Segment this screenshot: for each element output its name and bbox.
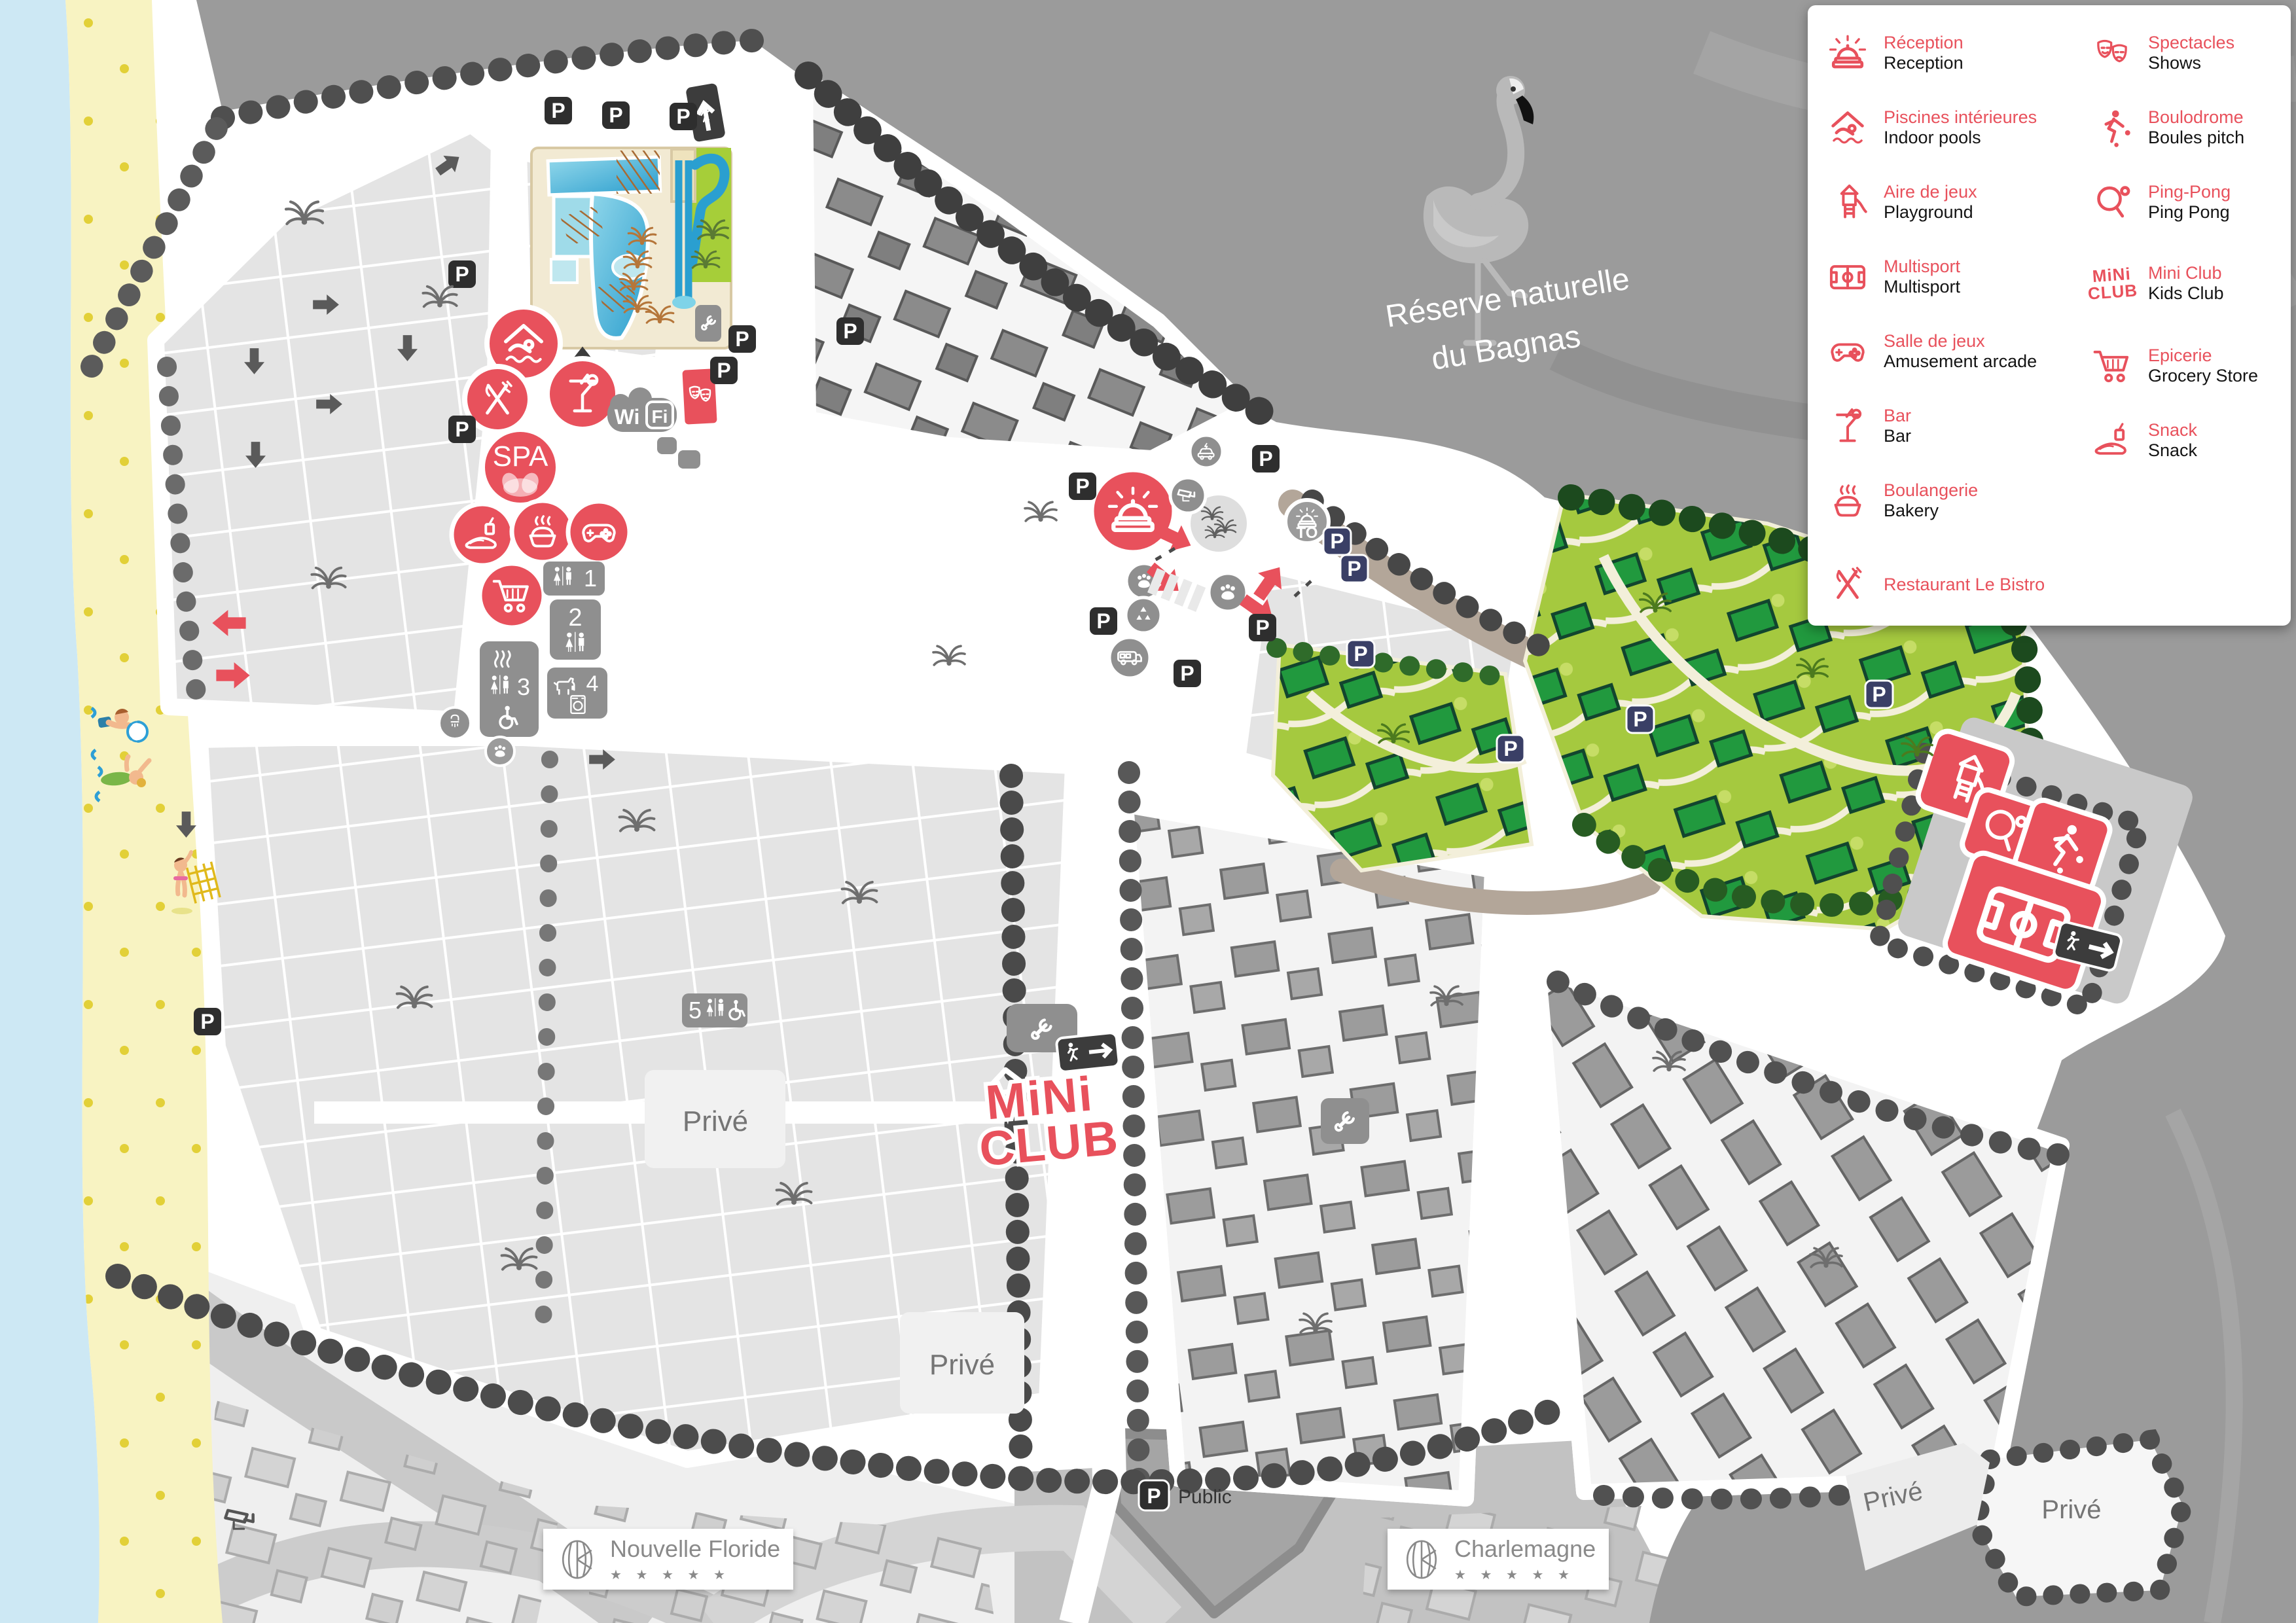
legend-item-playground: Aire de jeuxPlayground <box>1826 181 1977 224</box>
wifi-wi-label: Wi <box>615 405 640 429</box>
bakery-icon <box>512 501 573 562</box>
campsite-map: Réserve naturelle du Bagnas <box>0 0 2296 1623</box>
tour-operator-icon: TO <box>1285 500 1329 543</box>
legend-fr: Multisport <box>1884 257 1960 277</box>
shopping-cart-icon <box>2090 344 2134 387</box>
legend-en: Kids Club <box>2148 283 2224 304</box>
legend-item-boulodrome: BoulodromeBoules pitch <box>2090 106 2244 149</box>
block-1-number: 1 <box>584 565 597 592</box>
svg-text:P: P <box>1180 662 1194 685</box>
svg-text:P: P <box>1347 557 1361 580</box>
block-3-number: 3 <box>517 673 530 700</box>
resort-name: Nouvelle Floride <box>610 1535 780 1563</box>
svg-text:P: P <box>1255 616 1269 639</box>
playground-icon <box>1826 181 1869 224</box>
to-label: TO <box>1297 524 1318 542</box>
legend-fr: Epicerie <box>2148 346 2258 366</box>
parking-badge: P <box>1090 607 1117 635</box>
legend-fr: Salle de jeux <box>1884 331 2037 351</box>
legend-en: Multisport <box>1884 277 1960 297</box>
svg-text:P: P <box>455 262 469 286</box>
svg-text:P: P <box>735 327 749 351</box>
parking-badge: P <box>448 416 476 443</box>
loungers <box>617 151 660 194</box>
sanitary-block-1: 1 <box>543 562 605 596</box>
sanitary-block-4: 4 <box>547 668 607 719</box>
bakery-pie-icon <box>1826 479 1869 522</box>
prive-label: Privé <box>683 1105 748 1137</box>
parking-badge: P <box>602 101 630 129</box>
svg-text:P: P <box>1354 642 1367 666</box>
svg-text:P: P <box>1075 474 1089 498</box>
mini-club-line2: CLUB <box>2087 281 2138 302</box>
resort-badge-nouvelle-floride: Nouvelle Floride ★ ★ ★ ★ ★ <box>543 1529 793 1590</box>
legend-item-snack: SnackSnack <box>2090 419 2197 462</box>
legend-fr: Mini Club <box>2148 263 2224 283</box>
recycling-icon <box>1126 597 1161 633</box>
legend-item-mini-club: MiNiCLUB Mini ClubKids Club <box>2090 262 2224 305</box>
parking-badge: P <box>728 325 756 353</box>
parking-badge: P <box>545 97 572 124</box>
parking-badge: P <box>1252 445 1280 473</box>
beach-shower-icon <box>439 707 471 739</box>
mini-club-logo: MiNiCLUB <box>2090 262 2134 305</box>
wrench-service-icon <box>1321 1098 1369 1144</box>
legend-fr: Spectacles <box>2148 33 2234 53</box>
legend-item-restaurant: Restaurant Le Bistro <box>1826 563 2045 606</box>
snack-sandwich-icon <box>2090 419 2134 462</box>
parking-badge-navy: P <box>1626 705 1654 733</box>
parking-badge-navy: P <box>1323 527 1351 555</box>
parking-badge-navy: P <box>1340 555 1368 582</box>
legend-en: Ping Pong <box>2148 202 2231 223</box>
svg-text:P: P <box>1259 447 1272 471</box>
legend-fr: Bar <box>1884 406 1911 426</box>
legend-en: Amusement arcade <box>1884 351 2037 372</box>
palm-logo-icon <box>1401 1539 1443 1580</box>
ev-charging-icon <box>1190 435 1223 468</box>
resort-stars: ★ ★ ★ ★ ★ <box>610 1567 780 1583</box>
resort-name: Charlemagne <box>1454 1535 1596 1563</box>
wifi-fi-label: Fi <box>652 406 668 427</box>
svg-text:P: P <box>1872 683 1886 706</box>
pingpong-paddle-icon <box>2090 181 2134 224</box>
legend-item-grocery: EpicerieGrocery Store <box>2090 344 2258 387</box>
legend-item-arcade: Salle de jeuxAmusement arcade <box>1826 330 2037 373</box>
legend-en: Snack <box>2148 440 2197 461</box>
svg-text:P: P <box>1503 737 1517 760</box>
parking-badge: P <box>1249 614 1276 641</box>
public-label: Public <box>1178 1486 1232 1508</box>
sanitary-block-2: 2 <box>550 599 601 660</box>
legend-item-indoor-pools: Piscines intérieuresIndoor pools <box>1826 106 2037 149</box>
legend-en: Indoor pools <box>1884 128 2037 148</box>
legend-item-reception: RéceptionReception <box>1826 31 1964 75</box>
legend-fr: Boulodrome <box>2148 107 2244 128</box>
svg-text:P: P <box>609 103 622 127</box>
legend-item-bar: BarBar <box>1826 404 1911 448</box>
svg-text:P: P <box>843 319 857 343</box>
parking-badge-navy: P <box>1865 681 1893 708</box>
legend-en: Bar <box>1884 426 1911 446</box>
reception-bell-icon <box>1826 31 1869 75</box>
svg-text:P: P <box>455 418 469 441</box>
snack-icon <box>452 504 513 565</box>
grocery-icon <box>480 563 544 628</box>
legend-panel: RéceptionReception Piscines intérieuresI… <box>1808 5 2291 626</box>
legend-fr: Snack <box>2148 420 2197 440</box>
campervan-service-icon <box>1109 637 1150 678</box>
bar-icon <box>547 359 618 429</box>
sanitary-block-5: 5 <box>682 993 747 1027</box>
prive-label: Privé <box>929 1349 995 1381</box>
arcade-icon <box>568 501 630 563</box>
legend-fr: Piscines intérieures <box>1884 107 2037 128</box>
parking-badge: P <box>710 357 738 384</box>
svg-text:P: P <box>676 105 690 128</box>
sanitary-block-3: 3 <box>480 641 539 737</box>
legend-en: Grocery Store <box>2148 366 2258 386</box>
legend-fr: Aire de jeux <box>1884 182 1977 202</box>
resort-badge-charlemagne: Charlemagne ★ ★ ★ ★ ★ <box>1388 1529 1609 1590</box>
palm-logo-icon <box>556 1539 598 1580</box>
cocktail-icon <box>1826 404 1869 448</box>
cutlery-icon <box>1826 563 1869 606</box>
block-2-number: 2 <box>568 604 582 632</box>
boules-player-icon <box>2090 106 2134 149</box>
multisport-field-icon <box>1826 255 1869 298</box>
indoor-pool-icon <box>1826 106 1869 149</box>
parking-badge: P <box>448 260 476 288</box>
legend-item-pingpong: Ping-PongPing Pong <box>2090 181 2231 224</box>
theater-masks-icon <box>2090 31 2134 75</box>
block-4-number: 4 <box>586 671 599 696</box>
cctv-icon <box>1170 478 1206 513</box>
paw-icon <box>486 737 514 766</box>
spa-label: SPA <box>493 440 548 473</box>
svg-text:P: P <box>200 1010 214 1033</box>
svg-text:P: P <box>717 359 730 382</box>
legend-item-multisport: MultisportMultisport <box>1826 255 1960 298</box>
wrench-service-icon <box>695 305 721 342</box>
legend-fr: Réception <box>1884 33 1964 53</box>
parking-badge: P <box>836 317 864 345</box>
parking-badge: P <box>194 1008 221 1035</box>
legend-en: Bakery <box>1884 501 1978 521</box>
parking-badge: P <box>1174 660 1201 687</box>
legend-fr: Restaurant Le Bistro <box>1884 575 2045 595</box>
parking-badge: P <box>1069 473 1096 500</box>
legend-en: Playground <box>1884 202 1977 223</box>
game-controller-icon <box>1826 330 1869 373</box>
parking-badge-navy: P <box>1347 640 1374 668</box>
legend-en: Shows <box>2148 53 2234 73</box>
svg-text:P: P <box>551 99 565 122</box>
small-pool <box>551 259 577 283</box>
spa-badge: SPA <box>482 429 558 505</box>
svg-text:P: P <box>1633 707 1647 731</box>
legend-en: Boules pitch <box>2148 128 2244 148</box>
legend-item-bakery: BoulangerieBakery <box>1826 479 1978 522</box>
legend-fr: Boulangerie <box>1884 480 1978 501</box>
prive-label: Privé <box>2041 1495 2101 1524</box>
svg-text:P: P <box>1096 609 1110 633</box>
reception-bell-map-icon <box>1091 469 1175 553</box>
parking-badge-navy: P <box>1497 735 1524 762</box>
parking-badge: P <box>670 103 697 130</box>
resort-stars: ★ ★ ★ ★ ★ <box>1454 1567 1596 1583</box>
svg-text:P: P <box>1330 529 1344 553</box>
svg-text:P: P <box>1147 1484 1160 1508</box>
legend-fr: Ping-Pong <box>2148 182 2231 202</box>
legend-en: Reception <box>1884 53 1964 73</box>
block-5-number: 5 <box>689 997 702 1024</box>
legend-item-shows: SpectaclesShows <box>2090 31 2234 75</box>
